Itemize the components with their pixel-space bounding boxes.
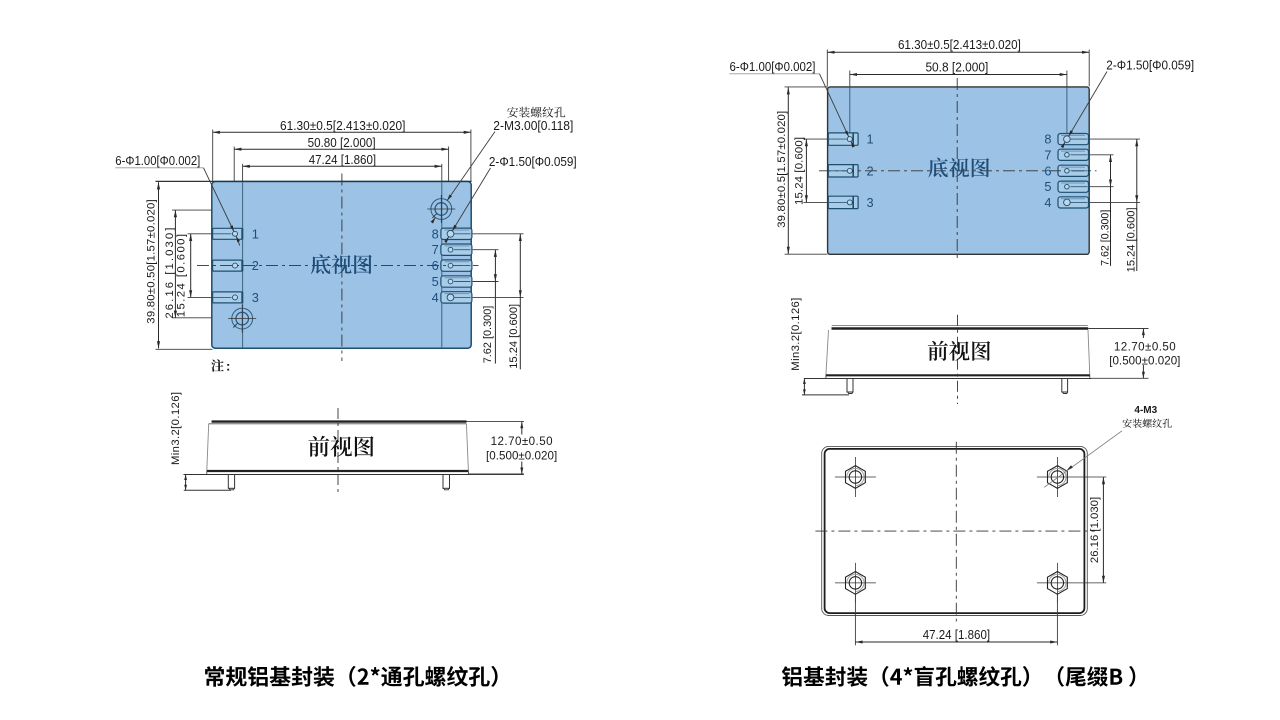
svg-text:8: 8 [1044, 132, 1051, 147]
svg-text:2-M3.00[0.118]: 2-M3.00[0.118] [493, 118, 573, 133]
svg-text:4: 4 [1044, 195, 1051, 210]
svg-text:6-Φ1.00[Φ0.002]: 6-Φ1.00[Φ0.002] [730, 59, 816, 74]
svg-text:2-Φ1.50[Φ0.059]: 2-Φ1.50[Φ0.059] [489, 154, 577, 169]
svg-text:4-M3: 4-M3 [1134, 405, 1157, 416]
svg-text:39.80±0.5[1.57±0.020]: 39.80±0.5[1.57±0.020] [776, 111, 788, 228]
svg-text:50.80 [2.000]: 50.80 [2.000] [308, 135, 376, 150]
svg-text:6: 6 [432, 258, 439, 273]
svg-text:Min3.2[0.126]: Min3.2[0.126] [790, 298, 802, 371]
svg-text:47.24 [1.860]: 47.24 [1.860] [309, 152, 376, 167]
svg-text:2: 2 [867, 163, 874, 178]
svg-text:2: 2 [252, 258, 259, 273]
svg-text:50.8 [2.000]: 50.8 [2.000] [925, 60, 988, 75]
svg-text::: : [226, 358, 230, 373]
svg-text:5: 5 [1044, 179, 1051, 194]
svg-text:47.24 [1.860]: 47.24 [1.860] [923, 627, 990, 642]
svg-text:61.30±0.5[2.413±0.020]: 61.30±0.5[2.413±0.020] [280, 118, 405, 133]
svg-text:7: 7 [432, 242, 439, 257]
svg-text:7: 7 [1044, 147, 1051, 162]
svg-text:8: 8 [432, 226, 439, 241]
svg-text:Min3.2[0.126]: Min3.2[0.126] [170, 392, 182, 465]
svg-text:4: 4 [432, 290, 439, 305]
svg-text:15.24 [0.600]: 15.24 [0.600] [1126, 207, 1138, 272]
svg-text:7.62 [0.300]: 7.62 [0.300] [482, 306, 494, 364]
svg-text:12.70±0.50: 12.70±0.50 [1114, 340, 1176, 353]
svg-text:39.80±0.50[1.57±0.020]: 39.80±0.50[1.57±0.020] [146, 199, 158, 323]
svg-text:1: 1 [252, 226, 259, 241]
svg-text:26.16 [1.030]: 26.16 [1.030] [1089, 497, 1101, 563]
svg-text:3: 3 [867, 195, 874, 210]
svg-text:5: 5 [432, 274, 439, 289]
svg-text:[0.500±0.020]: [0.500±0.020] [486, 450, 557, 463]
svg-text:15.24 [0.600]: 15.24 [0.600] [793, 137, 805, 205]
svg-text:61.30±0.5[2.413±0.020]: 61.30±0.5[2.413±0.020] [898, 37, 1021, 52]
svg-text:[0.500±0.020]: [0.500±0.020] [1109, 355, 1180, 368]
svg-text:12.70±0.50: 12.70±0.50 [491, 435, 553, 448]
svg-text:15.24 [0.600]: 15.24 [0.600] [508, 304, 520, 369]
svg-text:3: 3 [252, 290, 259, 305]
svg-text:26.16 [1.030]: 26.16 [1.030] [164, 228, 176, 319]
svg-text:6: 6 [1044, 163, 1051, 178]
svg-text:2-Φ1.50[Φ0.059]: 2-Φ1.50[Φ0.059] [1106, 57, 1194, 72]
svg-text:6-Φ1.00[Φ0.002]: 6-Φ1.00[Φ0.002] [115, 153, 200, 168]
svg-text:7.62 [0.300]: 7.62 [0.300] [1099, 210, 1111, 266]
svg-text:1: 1 [867, 132, 874, 147]
svg-text:15.24 [0.600]: 15.24 [0.600] [176, 234, 188, 317]
